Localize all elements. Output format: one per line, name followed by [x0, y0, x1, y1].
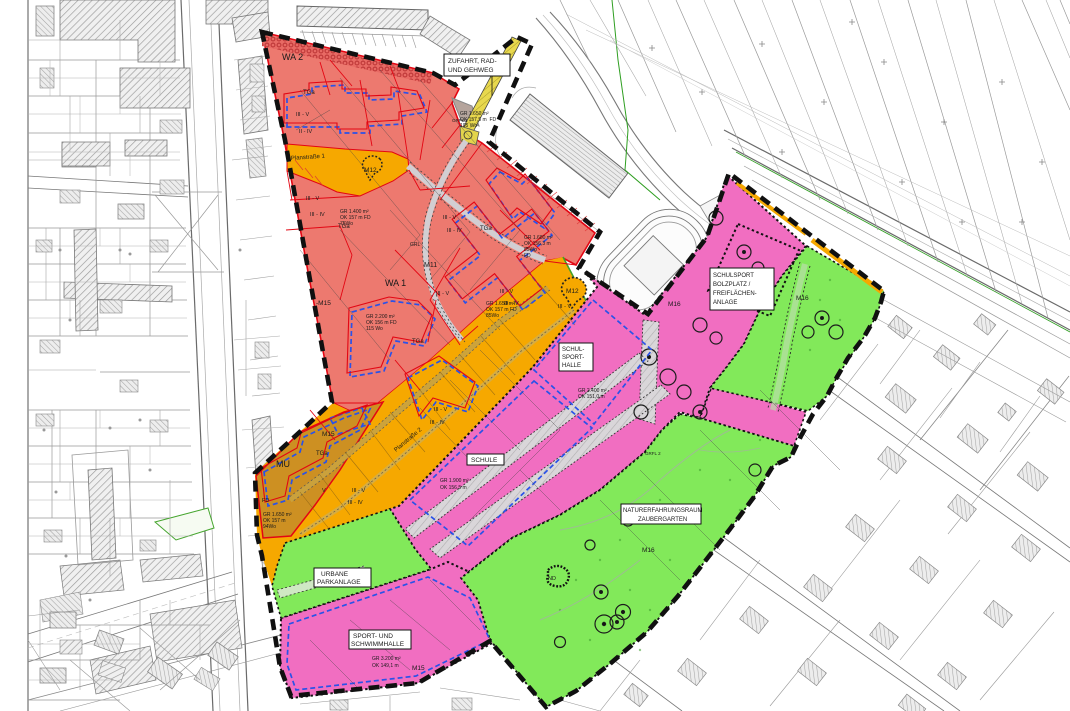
svg-text:TGa: TGa	[412, 339, 424, 345]
svg-text:SCHULE: SCHULE	[471, 457, 498, 464]
svg-text:TGa: TGa	[303, 90, 315, 96]
svg-text:85Wo: 85Wo	[486, 313, 499, 319]
svg-text:III - V: III - V	[443, 215, 456, 221]
svg-text:III - V: III - V	[296, 112, 309, 118]
svg-text:III - V: III - V	[434, 407, 447, 413]
svg-text:M12: M12	[364, 167, 377, 174]
svg-text:III - IV: III - IV	[447, 228, 462, 234]
svg-text:III - IV: III - IV	[504, 301, 519, 307]
svg-text:TGa: TGa	[480, 226, 492, 232]
svg-text:M12: M12	[566, 288, 579, 295]
svg-text:WA 1: WA 1	[385, 278, 406, 288]
svg-text:GR 3.200 m²: GR 3.200 m²	[372, 656, 401, 662]
svg-text:III - V: III - V	[558, 304, 571, 310]
svg-text:M15: M15	[412, 665, 425, 672]
svg-text:HALLE: HALLE	[562, 363, 581, 369]
svg-text:III - V: III - V	[436, 291, 449, 297]
svg-text:94Wo: 94Wo	[263, 524, 276, 530]
svg-text:-M15: -M15	[316, 300, 331, 307]
svg-text:III - IV: III - IV	[310, 212, 325, 218]
svg-text:OK 149,1 m: OK 149,1 m	[372, 663, 399, 669]
svg-text:SPORT- UND: SPORT- UND	[353, 633, 393, 640]
svg-text:75Wo: 75Wo	[340, 221, 353, 227]
svg-text:III - V: III - V	[352, 488, 365, 494]
svg-text:ZAUBERGARTEN: ZAUBERGARTEN	[638, 517, 687, 523]
svg-text:M16: M16	[796, 295, 809, 302]
svg-text:III - V: III - V	[500, 289, 513, 295]
svg-text:PARKANLAGE: PARKANLAGE	[317, 579, 361, 586]
svg-text:M15: M15	[322, 431, 335, 438]
svg-text:OK 151,0 m: OK 151,0 m	[578, 394, 605, 400]
svg-text:SCHULSPORT: SCHULSPORT	[713, 273, 754, 279]
svg-text:NATURERFAHRUNGSRAUM: NATURERFAHRUNGSRAUM	[623, 508, 703, 514]
svg-text:ND: ND	[548, 576, 556, 582]
svg-text:III - V: III - V	[306, 196, 319, 202]
svg-text:FD: FD	[524, 253, 531, 259]
svg-text:ANLAGE: ANLAGE	[713, 300, 737, 306]
svg-text:M16: M16	[642, 547, 655, 554]
svg-text:III - IV: III - IV	[348, 500, 363, 506]
svg-text:SCHUL-: SCHUL-	[562, 347, 584, 353]
svg-text:FD: FD	[262, 498, 269, 504]
svg-text:FREIFLÄCHEN-: FREIFLÄCHEN-	[713, 290, 757, 297]
svg-text:SCHWIMMHALLE: SCHWIMMHALLE	[351, 641, 405, 648]
svg-text:GRL: GRL	[410, 242, 421, 248]
svg-text:115 Wo: 115 Wo	[366, 326, 383, 332]
svg-text:M11: M11	[424, 262, 437, 269]
svg-text:ZUFAHRT, RAD-: ZUFAHRT, RAD-	[448, 58, 497, 65]
svg-text:WA 2: WA 2	[282, 52, 303, 62]
svg-text:V: V	[322, 488, 326, 494]
svg-text:BOLZPLATZ /: BOLZPLATZ /	[713, 282, 751, 288]
svg-text:III - IV: III - IV	[430, 420, 445, 426]
svg-text:105 Wo: 105 Wo	[460, 123, 477, 129]
svg-text:URBANE: URBANE	[321, 571, 349, 578]
svg-text:MU: MU	[276, 459, 290, 469]
svg-text:GR 1.900 m²: GR 1.900 m²	[440, 478, 469, 484]
svg-text:UND GEHWEG: UND GEHWEG	[448, 67, 494, 74]
svg-text:OK 156,5 m: OK 156,5 m	[440, 485, 467, 491]
svg-text:TGa: TGa	[316, 451, 328, 457]
svg-text:M16: M16	[668, 301, 681, 308]
svg-text:GRFL 2: GRFL 2	[645, 451, 661, 456]
svg-text:II - IV: II - IV	[299, 129, 312, 135]
svg-text:SPORT-: SPORT-	[562, 355, 584, 361]
